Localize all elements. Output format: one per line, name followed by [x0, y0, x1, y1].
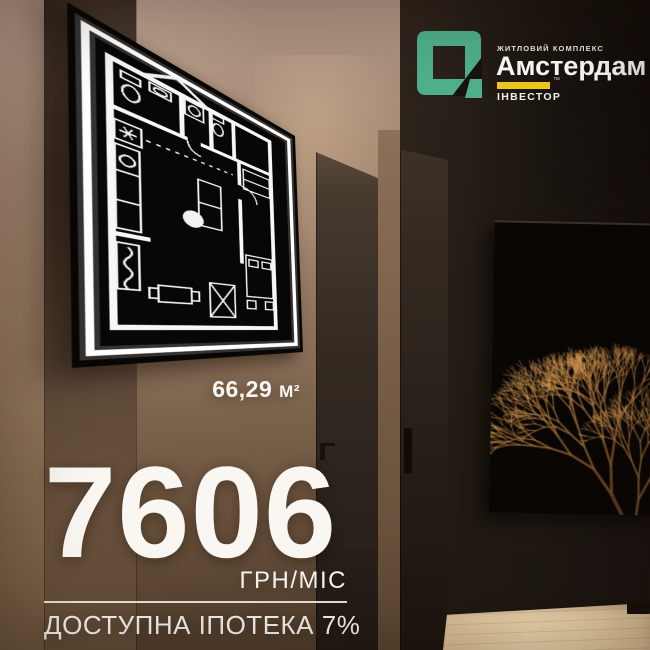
logo-estate-name: Амстердам: [496, 51, 646, 82]
branch-artwork-canvas: [489, 222, 650, 516]
logo-developer: ІНВЕСТОР: [497, 91, 561, 103]
door-handle-right: [404, 428, 414, 474]
branch-artwork: [489, 220, 650, 516]
area-unit: М²: [279, 382, 300, 401]
wall-vent: [627, 601, 650, 614]
promo-poster: 66,29 М² 7606 ГРН/МІС ДОСТУПНА ІПОТЕКА 7…: [0, 0, 650, 650]
logo-trademark: ™: [553, 77, 560, 84]
offer-block: 7606 ГРН/МІС ДОСТУПНА ІПОТЕКА 7%: [44, 458, 347, 640]
area-value: 66,29: [212, 376, 272, 402]
developer-logo: ЖИТЛОВИЙ КОМПЛЕКС Амстердам ™ ІНВЕСТОР: [416, 30, 650, 110]
mortgage-note: ДОСТУПНА ІПОТЕКА 7%: [44, 610, 347, 640]
amsterdam-logo-icon: [416, 30, 482, 100]
price-value: 7606: [44, 458, 347, 566]
logo-underline-bar: [497, 82, 550, 89]
area-label: 66,29 М²: [190, 376, 300, 403]
price-divider: [44, 601, 347, 603]
